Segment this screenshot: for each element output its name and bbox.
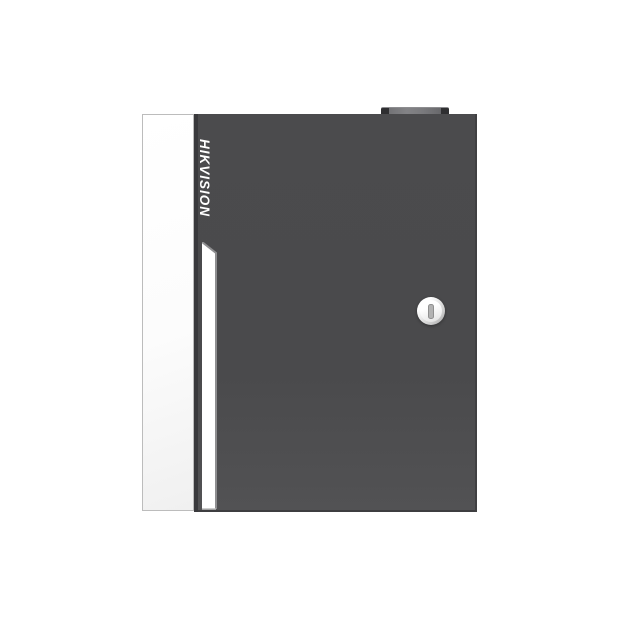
keyhole-icon (428, 304, 434, 319)
product-photo: HIKVISION (0, 0, 620, 620)
accent-stripe (202, 242, 219, 511)
enclosure-side-panel (142, 114, 194, 511)
keyhole-lock (417, 297, 445, 325)
accent-stripe-face (202, 242, 216, 509)
brand-logo-text: HIKVISION (196, 139, 213, 235)
lock-face (420, 300, 442, 322)
